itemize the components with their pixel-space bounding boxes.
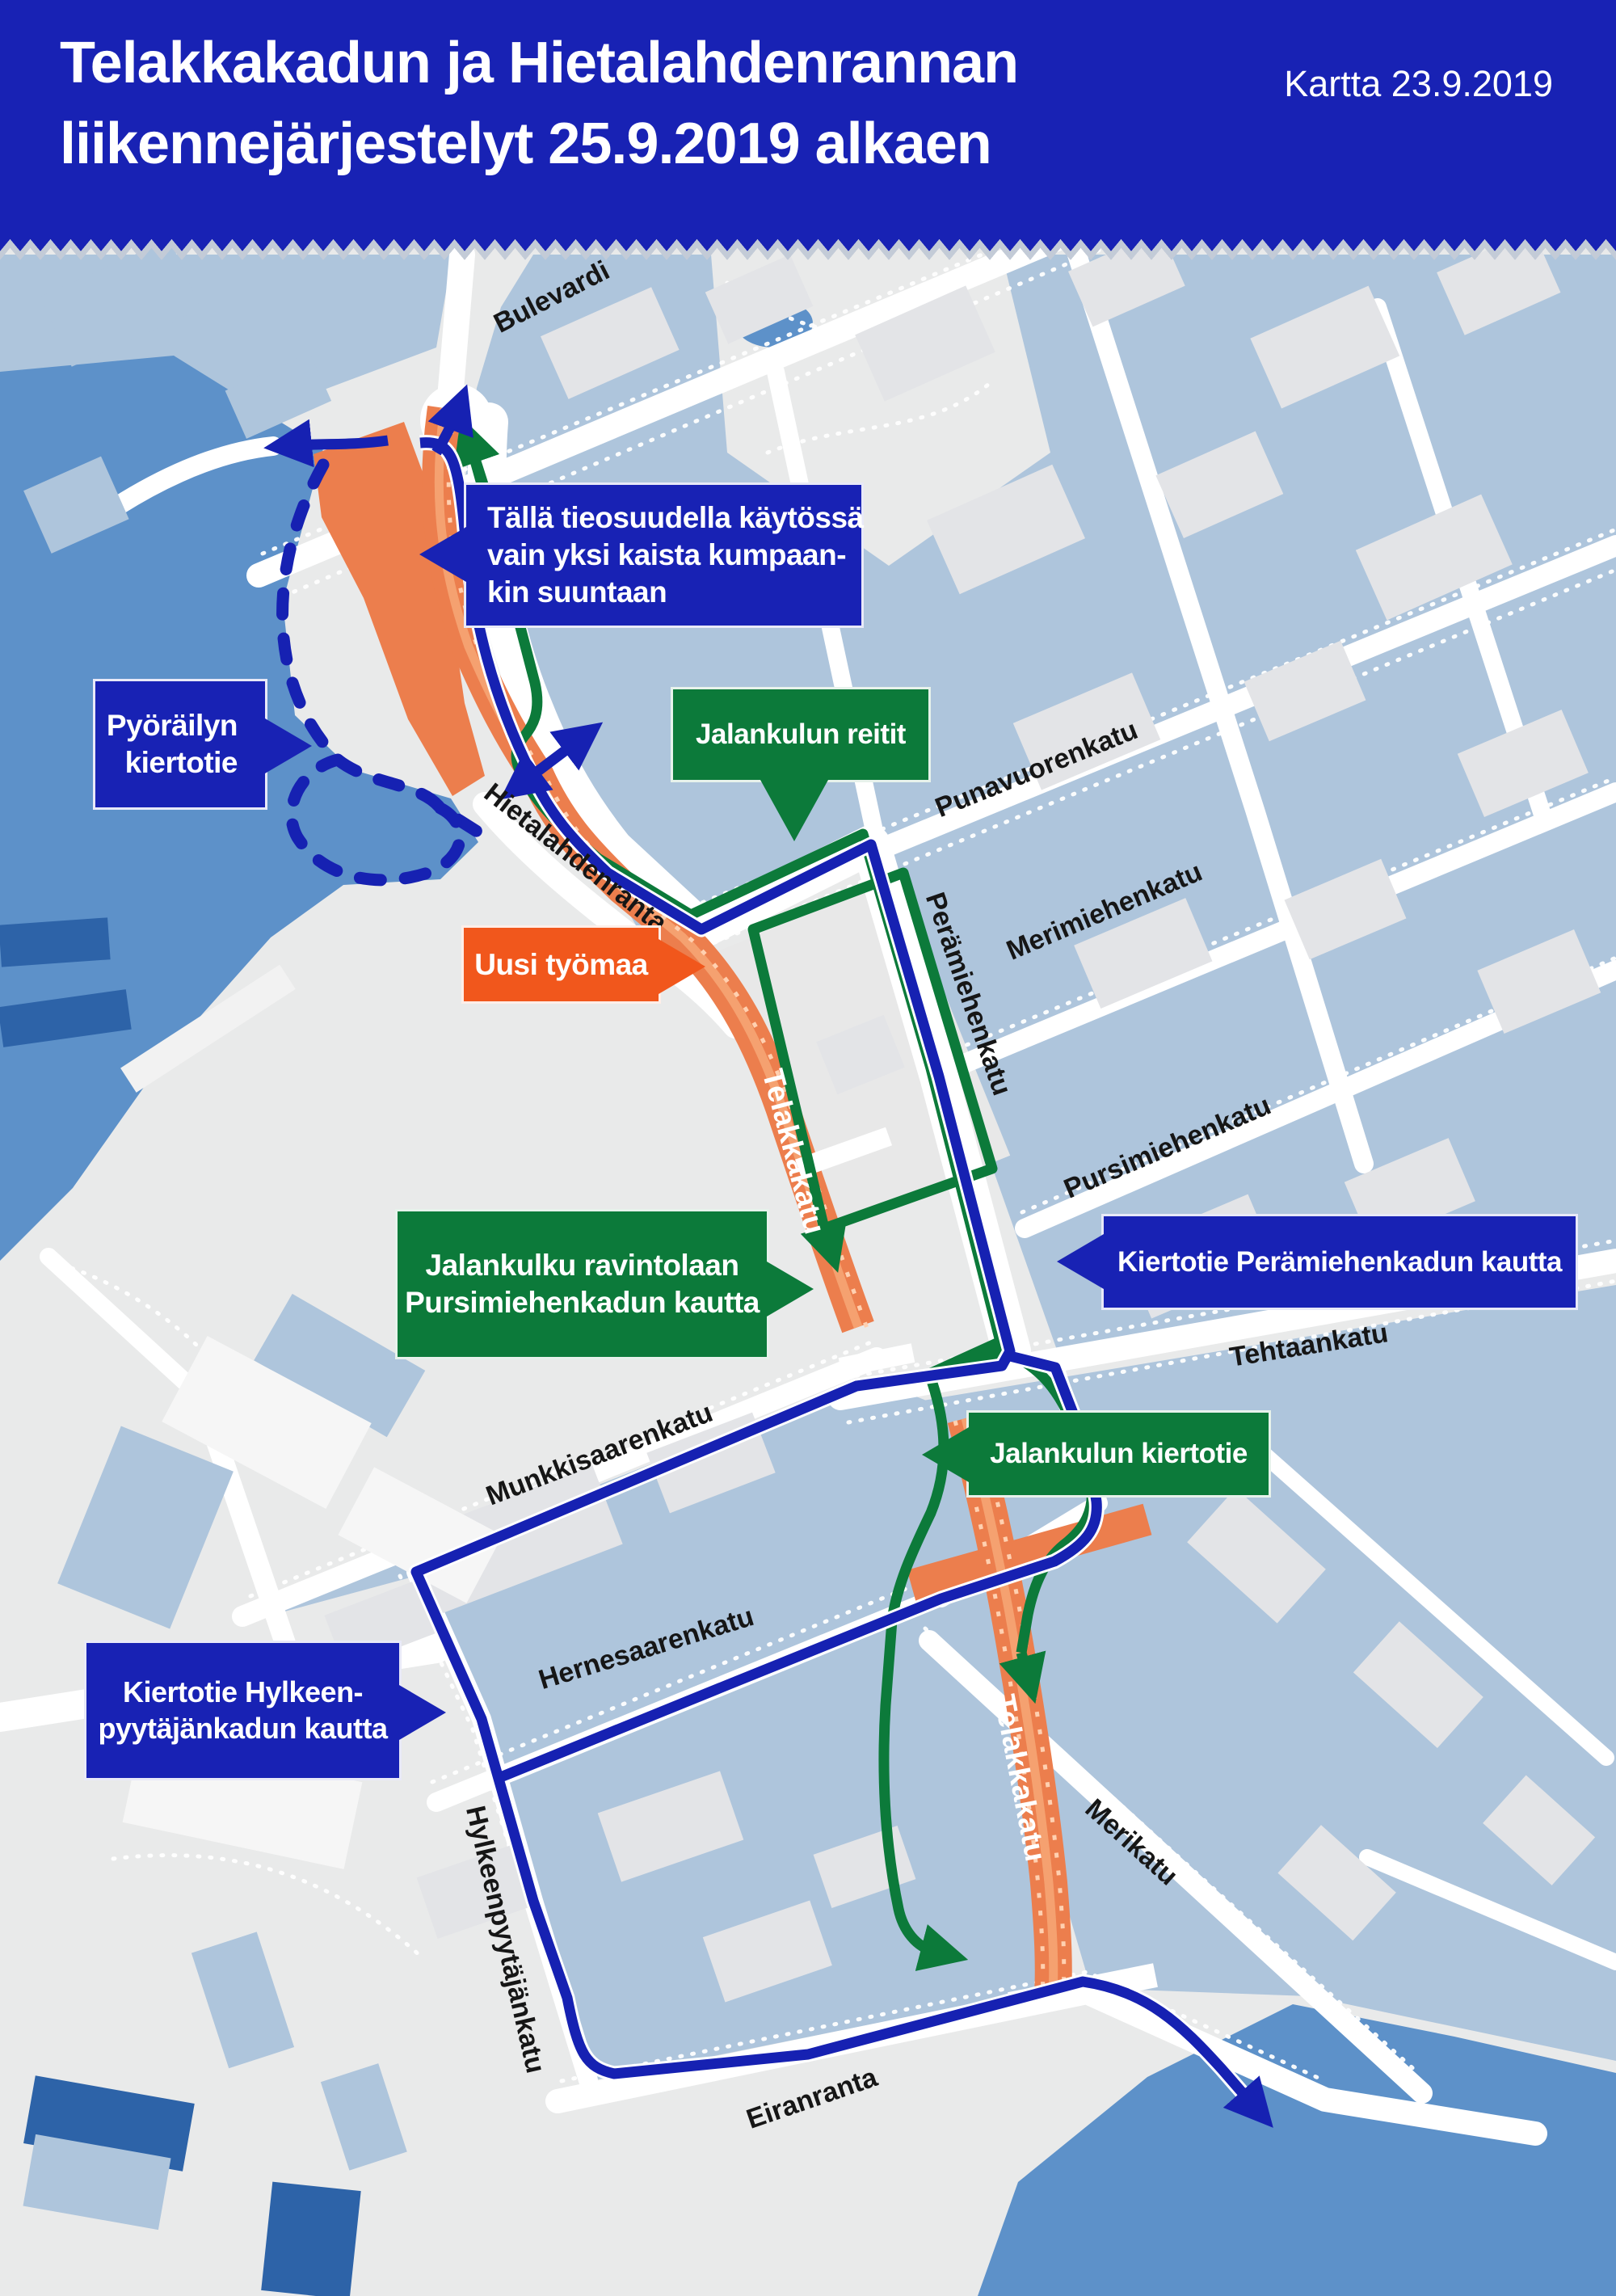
- page-title-line1: Telakkakadun ja Hietalahdenrannan: [60, 23, 1018, 103]
- callout-one-lane-line1: Tällä tieosuudella käytössä: [487, 499, 864, 537]
- callout-detour-peramiehenkatu-line1: Kiertotie Perämiehenkadun kautta: [1117, 1245, 1562, 1279]
- callout-pedestrian-routes-line1: Jalankulun reitit: [696, 717, 906, 752]
- callout-pointer: [399, 1685, 446, 1740]
- traffic-arrangement-poster: Bulevardi Hietalahdenranta Punavuorenkat…: [0, 0, 1616, 2296]
- detour-arrow-west: [283, 440, 388, 446]
- callout-pedestrian-detour: Jalankulun kiertotie: [966, 1410, 1271, 1498]
- callout-detour-hylkeen-line2: pyytäjänkadun kautta: [98, 1711, 387, 1747]
- callout-new-worksite: Uusi työmaa: [461, 925, 661, 1004]
- callout-one-lane-line3: kin suuntaan: [487, 574, 667, 611]
- map-date-label: Kartta 23.9.2019: [1284, 63, 1553, 105]
- callout-cycling-detour: Pyöräilyn kiertotie: [93, 679, 267, 810]
- page-title-line2: liikennejärjestelyt 25.9.2019 alkaen: [60, 103, 1018, 184]
- callout-cycling-line2: kiertotie: [125, 744, 238, 781]
- header-banner: Telakkakadun ja Hietalahdenrannan liiken…: [0, 0, 1616, 228]
- callout-pointer: [659, 939, 705, 994]
- callout-detour-peramiehenkatu: Kiertotie Perämiehenkadun kautta: [1101, 1214, 1578, 1310]
- callout-pointer: [767, 1262, 814, 1317]
- callout-walk-to-restaurant: Jalankulku ravintolaan Pursimiehenkadun …: [395, 1209, 769, 1359]
- page-title: Telakkakadun ja Hietalahdenrannan liiken…: [60, 23, 1018, 184]
- callout-pointer: [760, 780, 828, 841]
- callout-pointer: [265, 718, 312, 773]
- callout-pedestrian-routes: Jalankulun reitit: [671, 687, 931, 782]
- callout-one-lane: Tällä tieosuudella käytössä vain yksi ka…: [464, 482, 864, 628]
- callout-cycling-line1: Pyöräilyn: [107, 707, 238, 744]
- callout-one-lane-line2: vain yksi kaista kumpaan-: [487, 537, 846, 574]
- callout-walk-restaurant-line1: Jalankulku ravintolaan: [426, 1247, 739, 1284]
- zigzag-edge: [0, 227, 1616, 251]
- callout-new-worksite-line1: Uusi työmaa: [474, 946, 648, 984]
- callout-detour-hylkeenpyytajankatu: Kiertotie Hylkeen- pyytäjänkadun kautta: [84, 1641, 402, 1780]
- callout-walk-restaurant-line2: Pursimiehenkadun kautta: [405, 1284, 760, 1321]
- callout-pointer: [1057, 1234, 1104, 1289]
- callout-pedestrian-detour-line1: Jalankulun kiertotie: [990, 1436, 1248, 1471]
- callout-pointer: [922, 1427, 969, 1482]
- callout-pointer: [419, 527, 466, 582]
- callout-detour-hylkeen-line1: Kiertotie Hylkeen-: [123, 1675, 363, 1711]
